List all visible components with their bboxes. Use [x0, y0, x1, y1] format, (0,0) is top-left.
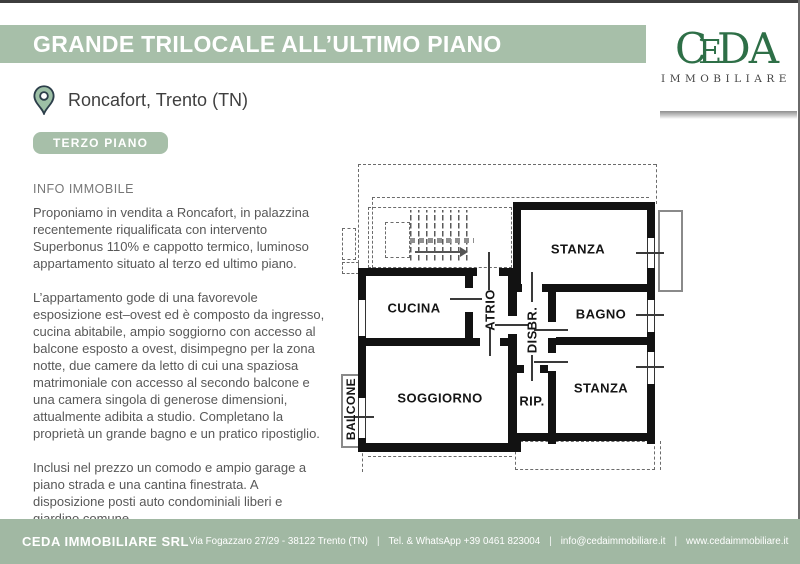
door-mark — [488, 252, 490, 290]
door-mark — [531, 355, 533, 381]
window-symbol — [647, 300, 655, 332]
room-label-cucina: CUCINA — [388, 301, 441, 316]
dashed-outline — [358, 164, 359, 268]
info-paragraph: Inclusi nel prezzo un comodo e ampio gar… — [33, 459, 325, 527]
room-label-rip: RIP. — [519, 394, 544, 409]
logo-letter: D — [717, 24, 749, 73]
floor-badge: TERZO PIANO — [33, 132, 168, 154]
agency-logo: CEDA IMMOBILIARE — [658, 28, 794, 85]
dashed-outline — [342, 228, 356, 260]
door-mark — [489, 328, 491, 356]
floorplan: STANZA CUCINA ATRIO DISBR. BAGNO SOGGIOR… — [338, 148, 684, 478]
location-text: Roncafort, Trento (TN) — [68, 90, 248, 111]
dashed-outline — [656, 164, 657, 204]
dashed-outline — [358, 164, 656, 165]
map-pin-icon — [33, 85, 55, 115]
wall-segment — [548, 337, 655, 345]
footer-separator: | — [549, 536, 552, 547]
room-label-disbr: DISBR. — [525, 307, 540, 353]
door-mark — [531, 272, 533, 302]
window-mark — [636, 366, 664, 368]
room-label-balcone: BALCONE — [344, 378, 358, 440]
stair-direction-arrow — [415, 251, 461, 253]
window-mark — [636, 252, 664, 254]
wall-segment — [510, 433, 521, 452]
dashed-outline — [368, 456, 512, 457]
room-label-stanza-bottom: STANZA — [574, 381, 628, 396]
logo-subtitle: IMMOBILIARE — [658, 73, 794, 85]
stair-direction-arrowhead — [460, 247, 468, 257]
footer-phone: Tel. & WhatsApp +39 0461 823004 — [389, 536, 541, 547]
dashed-lower-balcony — [515, 441, 655, 470]
info-paragraph: Proponiamo in vendita a Roncafort, in pa… — [33, 204, 325, 272]
footer-email: info@cedaimmobiliare.it — [561, 536, 666, 547]
footer-details: Via Fogazzaro 27/29 - 38122 Trento (TN) … — [189, 536, 788, 547]
page-title: GRANDE TRILOCALE ALL’ULTIMO PIANO — [0, 25, 646, 63]
wall-segment — [513, 202, 655, 210]
footer-website: www.cedaimmobiliare.it — [686, 536, 788, 547]
door-opening — [465, 288, 473, 312]
room-label-atrio: ATRIO — [483, 289, 498, 330]
footer-company: CEDA IMMOBILIARE SRL — [22, 534, 189, 549]
title-bar: GRANDE TRILOCALE ALL’ULTIMO PIANO — [0, 25, 646, 63]
door-mark — [450, 298, 482, 300]
info-paragraph: L’appartamento gode di una favorevole es… — [33, 289, 325, 442]
footer-bar: CEDA IMMOBILIARE SRL Via Fogazzaro 27/29… — [0, 519, 800, 564]
balcony-door-symbol — [358, 398, 366, 438]
logo-wordmark: CEDA — [658, 28, 794, 70]
wall-segment — [508, 268, 517, 451]
page-top-edge — [0, 0, 800, 3]
stair-mid-landing — [410, 238, 474, 243]
wall-segment — [510, 433, 655, 441]
window-mark — [636, 314, 664, 316]
logo-letter: A — [749, 24, 777, 73]
dashed-outline — [660, 441, 661, 470]
location-row: Roncafort, Trento (TN) — [33, 85, 248, 115]
info-body: Proponiamo in vendita a Roncafort, in pa… — [33, 204, 325, 544]
dashed-outline — [372, 197, 649, 198]
room-label-soggiorno: SOGGIORNO — [397, 391, 482, 406]
room-label-stanza-top: STANZA — [551, 242, 605, 257]
footer-separator: | — [377, 536, 380, 547]
logo-card-shadow — [660, 111, 797, 119]
wall-segment — [358, 443, 521, 452]
stairwell-landing-outline — [385, 222, 410, 258]
wall-segment — [358, 338, 473, 346]
footer-separator: | — [674, 536, 677, 547]
window-symbol — [358, 300, 366, 336]
room-label-bagno: BAGNO — [576, 307, 626, 322]
door-mark — [534, 361, 568, 363]
balcony-east — [658, 210, 683, 292]
window-symbol — [647, 352, 655, 384]
flyer-page: { "header": { "title": "GRANDE TRILOCALE… — [0, 0, 800, 564]
footer-address: Via Fogazzaro 27/29 - 38122 Trento (TN) — [189, 536, 368, 547]
info-heading: INFO IMMOBILE — [33, 182, 134, 196]
dashed-outline — [342, 262, 359, 274]
